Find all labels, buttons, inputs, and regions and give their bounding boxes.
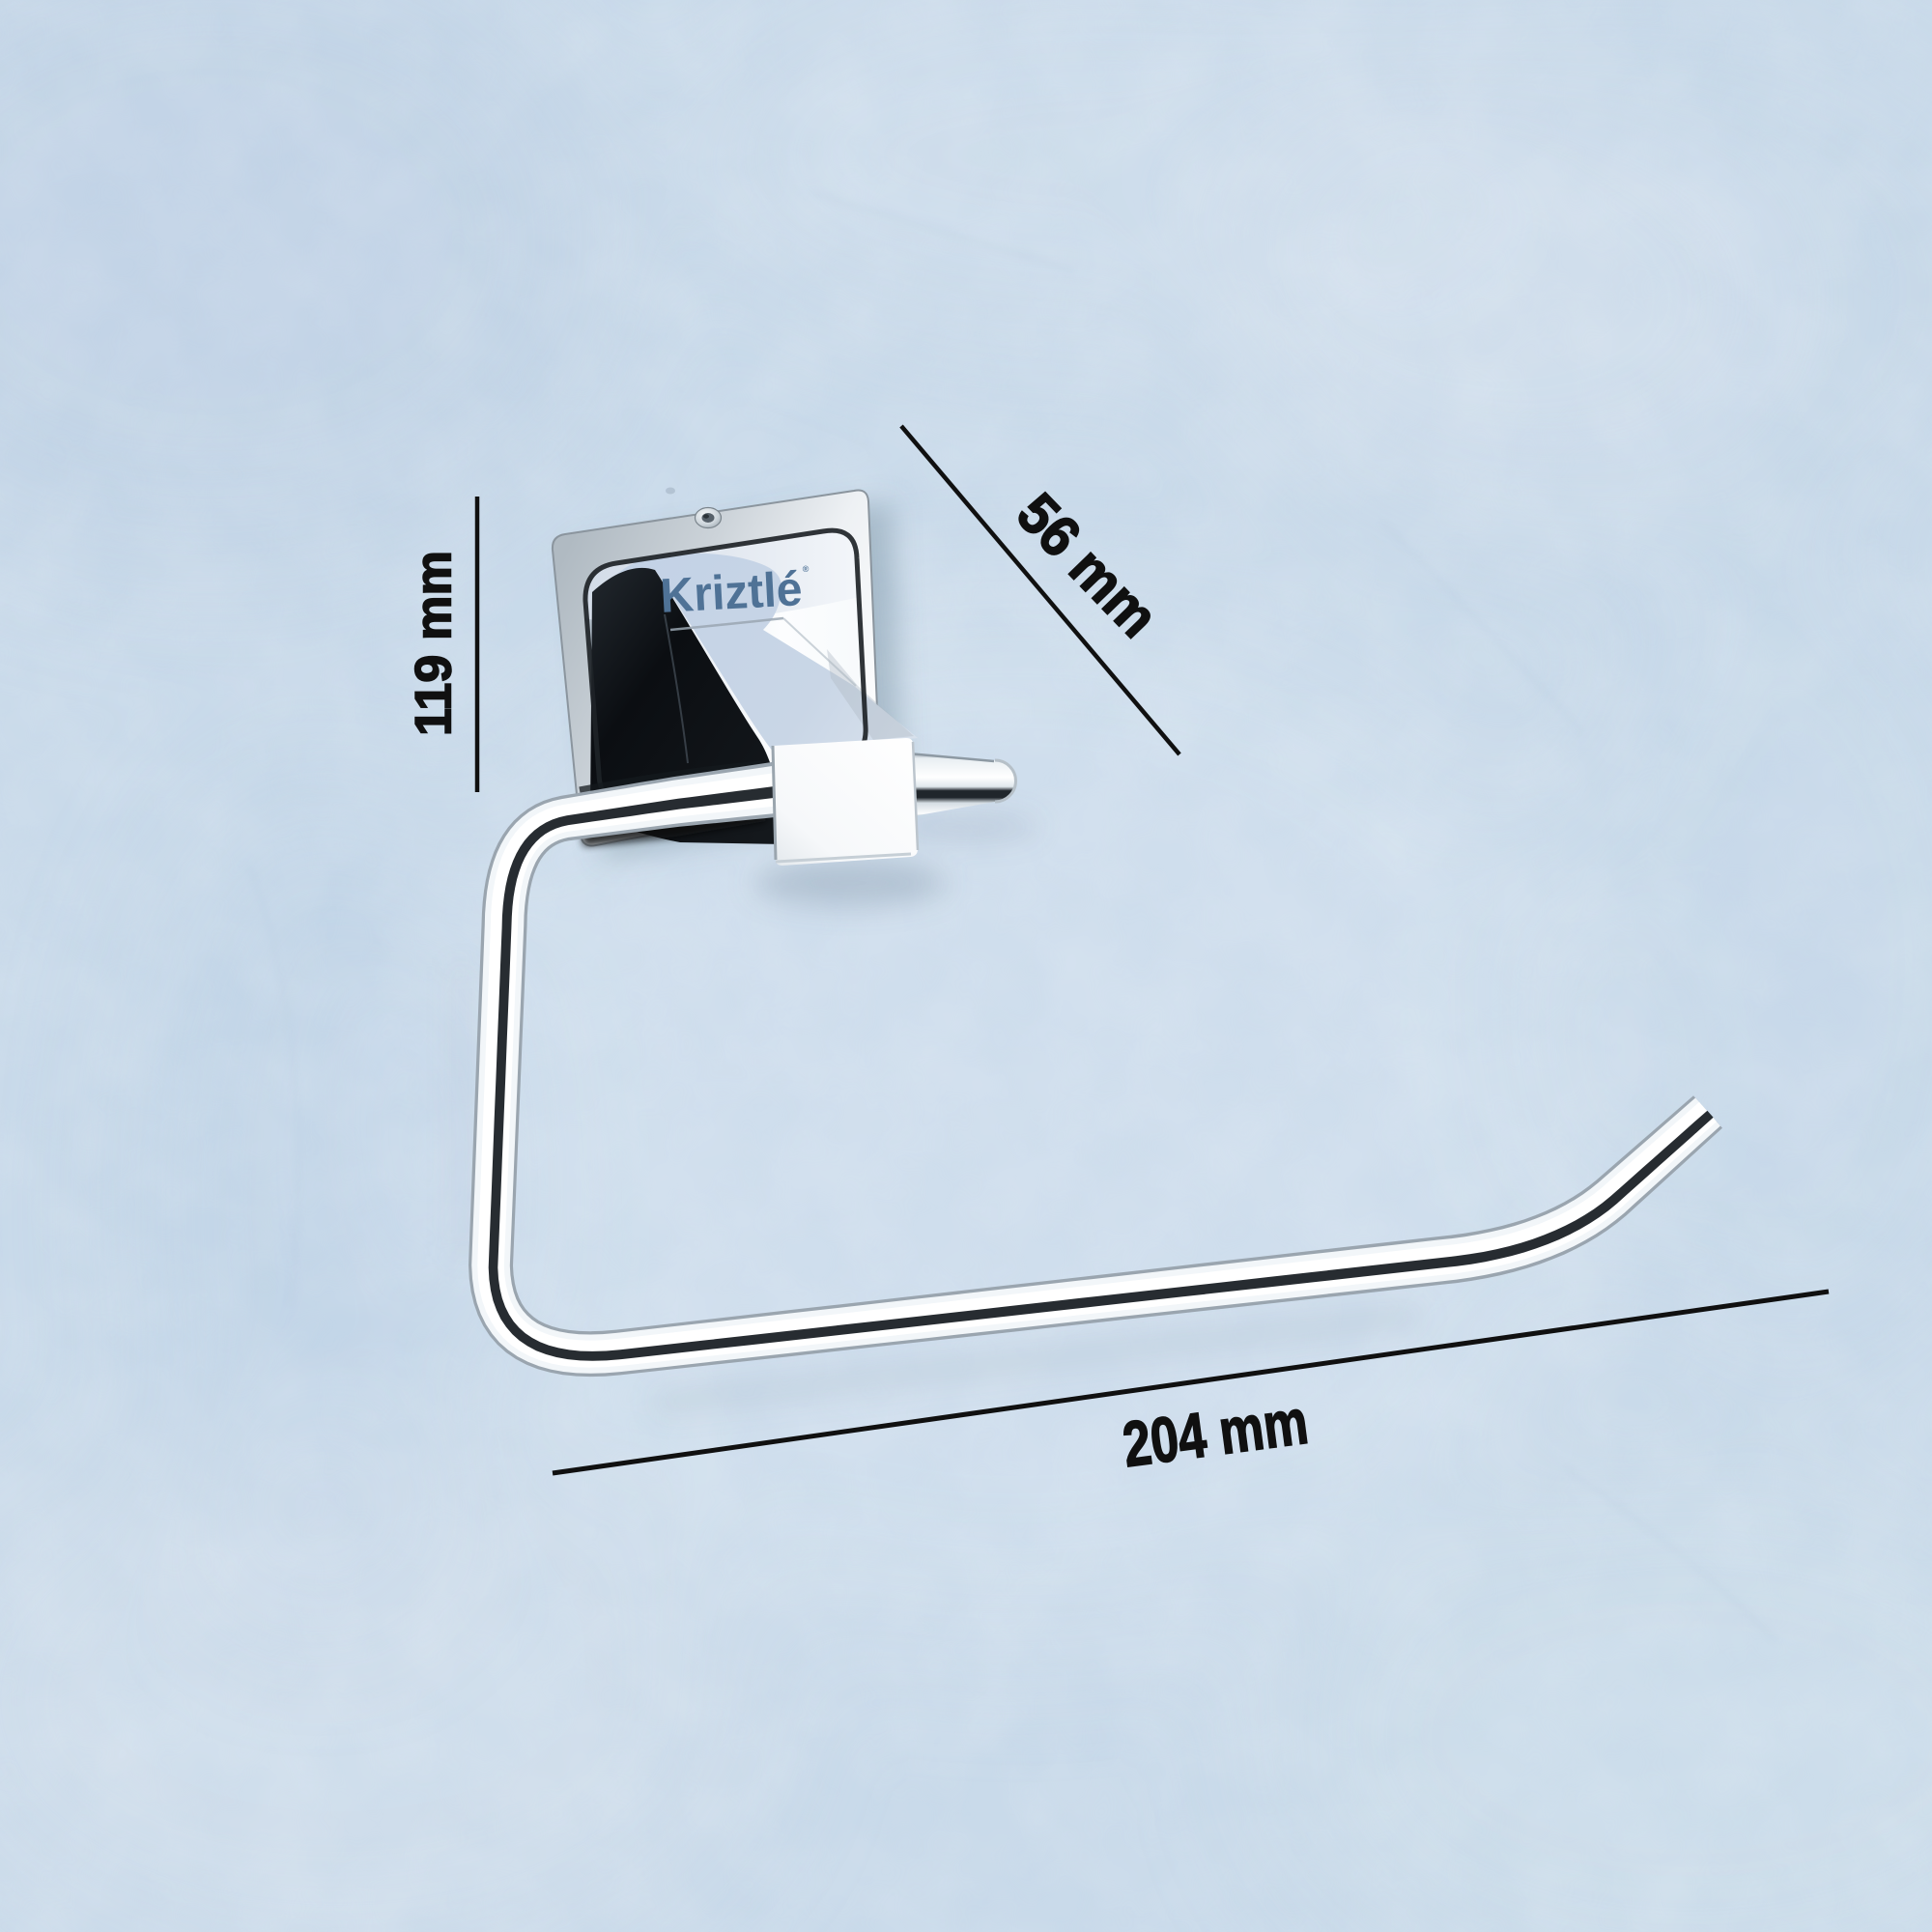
svg-text:®: ® bbox=[802, 564, 810, 574]
svg-text:119 mm: 119 mm bbox=[406, 551, 463, 736]
svg-text:Kriztlé: Kriztlé bbox=[659, 561, 804, 623]
